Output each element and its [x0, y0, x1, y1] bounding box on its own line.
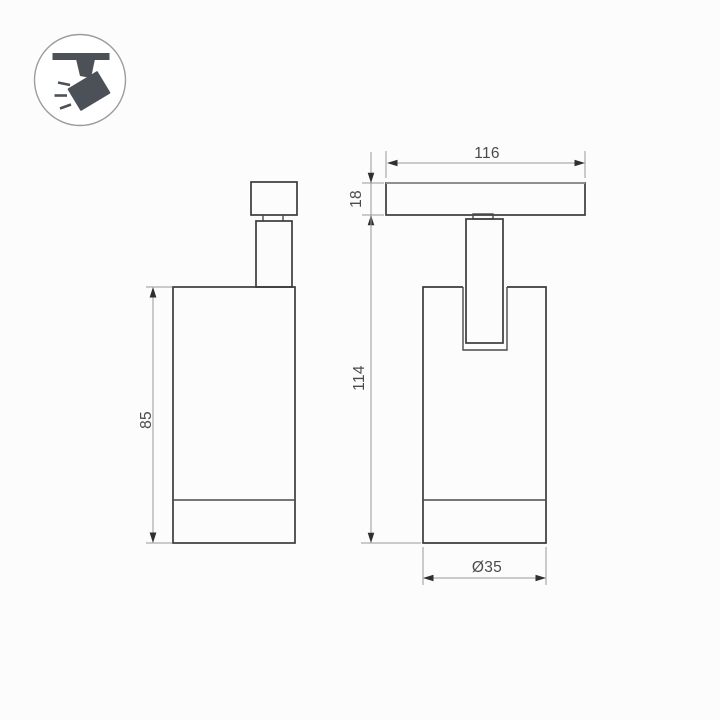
- dimension-drawing-page: 85 116 18: [0, 0, 720, 720]
- dimension-label-overall-height: 114: [351, 365, 368, 391]
- dimension-label-body-diameter: Ø35: [472, 559, 502, 576]
- technical-drawing: 85 116 18: [0, 0, 720, 720]
- side-stem: [256, 221, 292, 287]
- dimension-body-height: 85: [138, 287, 172, 543]
- dimension-track-width: 116: [386, 145, 585, 178]
- front-stem: [466, 219, 503, 343]
- side-connector: [263, 215, 283, 221]
- product-type-badge: [35, 35, 126, 126]
- front-yoke-slot: [463, 287, 507, 350]
- dimension-overall-height: 114: [351, 217, 421, 543]
- front-view: [386, 183, 585, 543]
- dimension-label-body-height: 85: [138, 411, 155, 429]
- icon-track-bar: [53, 53, 110, 60]
- side-track-adapter: [251, 182, 297, 215]
- side-body: [173, 287, 295, 543]
- dimension-label-track-height: 18: [348, 190, 365, 208]
- dimension-body-diameter: Ø35: [423, 547, 546, 585]
- side-view: [173, 182, 297, 543]
- front-body: [423, 287, 546, 543]
- dimension-track-height: 18: [348, 152, 384, 225]
- dimension-label-track-width: 116: [474, 145, 500, 162]
- front-track-adapter: [386, 183, 585, 215]
- icon-circle: [35, 35, 126, 126]
